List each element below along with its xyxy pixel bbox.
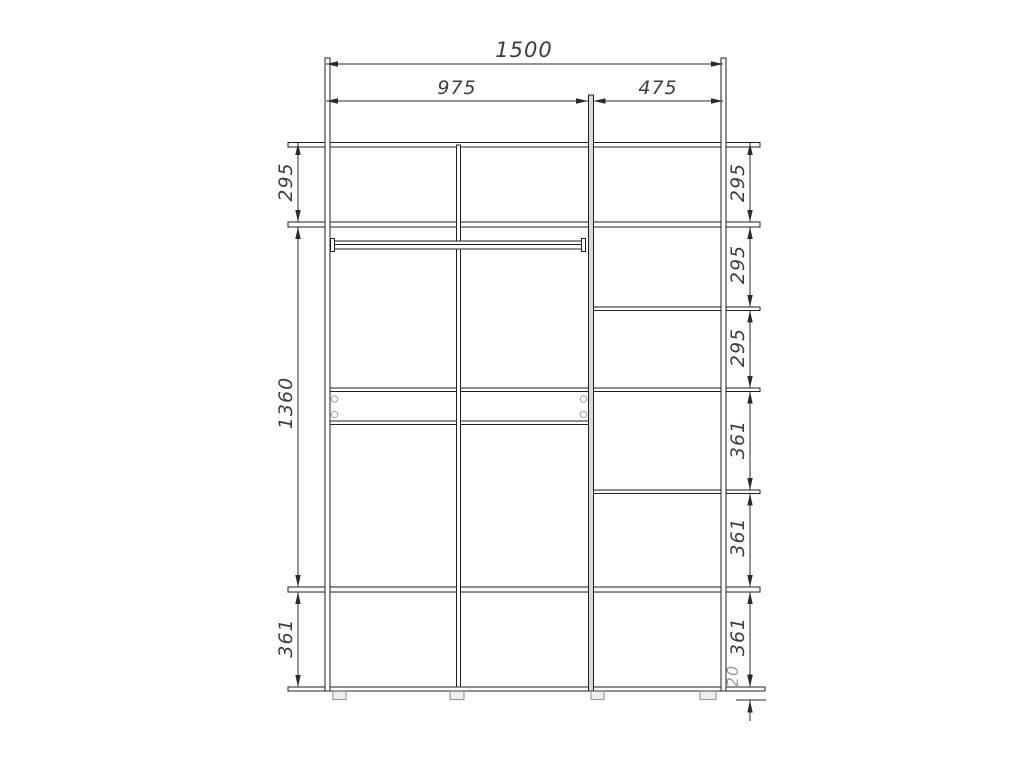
center-partition	[457, 145, 461, 687]
foot-divider	[591, 692, 604, 700]
dim-left-section-width: 975	[437, 77, 476, 99]
lower-shelf-full-width	[288, 587, 760, 592]
dim-right-s2: 295	[727, 245, 749, 284]
dim-right-s6: 361	[727, 617, 749, 656]
foot-left	[333, 692, 346, 700]
foot-center	[450, 692, 464, 700]
dim-right-base: 20	[723, 665, 742, 687]
dim-right-section-width: 475	[638, 77, 677, 99]
dim-overall-width: 1500	[495, 38, 552, 62]
horizontal-panels	[288, 143, 765, 692]
foot-right	[700, 692, 716, 700]
right-dimensions: 295 295 295 361 361 361 20	[723, 143, 766, 721]
shelf-pin-icon	[331, 411, 337, 417]
dim-right-s1: 295	[727, 163, 749, 202]
vertical-panels	[325, 58, 726, 691]
right-side-panel	[721, 58, 726, 691]
top-panel	[288, 143, 760, 148]
right-shelf-1	[592, 307, 760, 311]
feet	[333, 692, 716, 700]
upper-shelf-full-width	[288, 222, 760, 227]
rod-end-bracket-left	[331, 239, 335, 252]
dim-right-s5: 361	[727, 517, 749, 556]
shelf-pin-icon	[580, 411, 586, 417]
bottom-panel	[288, 687, 765, 691]
top-dimensions: 1500 975 475	[326, 38, 723, 101]
dim-left-middle-height: 1360	[275, 377, 297, 429]
right-shelf-2	[592, 490, 760, 494]
shelf-pin-icon	[580, 396, 586, 402]
left-side-panel	[325, 58, 330, 691]
dim-left-bottom-height: 361	[275, 618, 297, 657]
shelf-pin-icon	[331, 396, 337, 402]
rod-end-bracket-right	[582, 239, 586, 252]
dim-right-s4: 361	[727, 420, 749, 459]
wardrobe-dimension-drawing: 1500 975 475 295 1360 361 295 295 295 36…	[0, 0, 1024, 768]
middle-shelf-full-width	[327, 388, 760, 392]
section-divider-panel	[589, 95, 594, 691]
drawing-canvas: 1500 975 475 295 1360 361 295 295 295 36…	[0, 0, 1024, 768]
dim-right-s3: 295	[727, 328, 749, 367]
dim-left-top-height: 295	[275, 162, 297, 201]
